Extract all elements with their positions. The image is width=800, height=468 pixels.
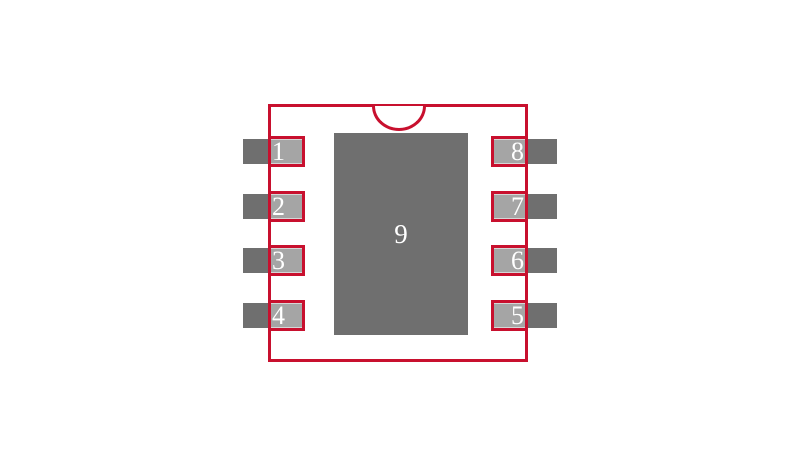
pin-7-lead bbox=[527, 194, 557, 219]
pin-5-lead bbox=[527, 303, 557, 328]
pin-7-number: 7 bbox=[511, 194, 524, 220]
pin-6-pad: 6 bbox=[491, 245, 528, 276]
pin-3-pad: 3 bbox=[268, 245, 305, 276]
pin-4-pad: 4 bbox=[268, 300, 305, 331]
pin-2-number: 2 bbox=[272, 194, 285, 220]
pin-6-lead bbox=[527, 248, 557, 273]
pin-2-pad: 2 bbox=[268, 191, 305, 222]
pin-1-pad: 1 bbox=[268, 136, 305, 167]
pin-5-number: 5 bbox=[511, 303, 524, 329]
pin-8-pad: 8 bbox=[491, 136, 528, 167]
pin-6-number: 6 bbox=[511, 248, 524, 274]
pin-4-number: 4 bbox=[272, 303, 285, 329]
thermal-pad-number: 9 bbox=[394, 221, 408, 248]
pin-5-pad: 5 bbox=[491, 300, 528, 331]
thermal-pad: 9 bbox=[334, 133, 468, 335]
pin-8-lead bbox=[527, 139, 557, 164]
pin-1-number: 1 bbox=[272, 139, 285, 165]
pin-7-pad: 7 bbox=[491, 191, 528, 222]
pin-3-number: 3 bbox=[272, 248, 285, 274]
footprint-diagram: 9 1 2 3 4 8 7 6 5 bbox=[0, 0, 800, 468]
pin-8-number: 8 bbox=[511, 139, 524, 165]
